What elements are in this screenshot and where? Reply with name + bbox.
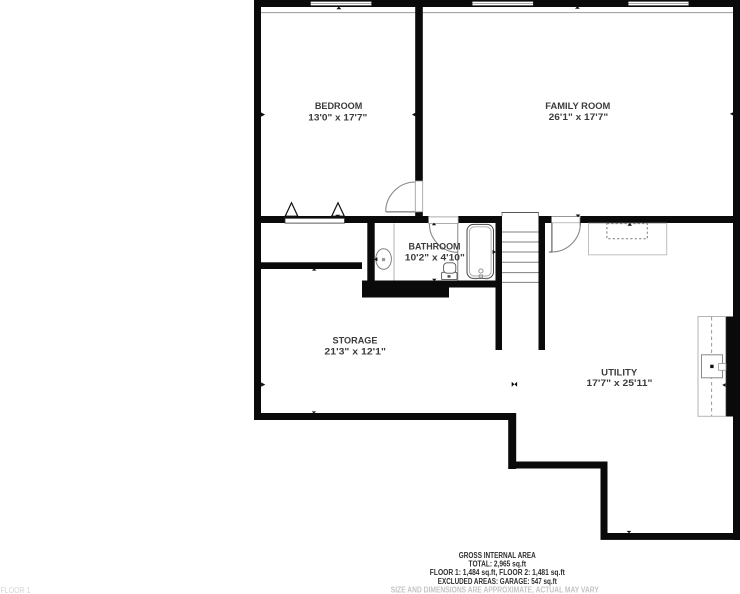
svg-text:26'1" x 17'7": 26'1" x 17'7" [549, 112, 609, 123]
svg-text:13'0" x 17'7": 13'0" x 17'7" [308, 112, 367, 123]
svg-text:17'7" x 25'11": 17'7" x 25'11" [586, 378, 652, 389]
svg-text:STORAGE: STORAGE [333, 336, 378, 347]
svg-text:21'3" x 12'1": 21'3" x 12'1" [324, 346, 386, 357]
svg-text:TOTAL: 2,965 sq.ft: TOTAL: 2,965 sq.ft [469, 560, 527, 569]
svg-text:10'2" x 4'10": 10'2" x 4'10" [405, 252, 465, 263]
svg-text:SIZE AND DIMENSIONS ARE APPROX: SIZE AND DIMENSIONS ARE APPROXIMATE, ACT… [391, 585, 600, 594]
svg-text:BATHROOM: BATHROOM [409, 242, 461, 253]
svg-text:UTILITY: UTILITY [601, 367, 638, 378]
svg-text:FLOOR 1: FLOOR 1 [1, 586, 31, 594]
svg-text:FAMILY ROOM: FAMILY ROOM [545, 101, 610, 112]
svg-text:BEDROOM: BEDROOM [315, 101, 363, 112]
